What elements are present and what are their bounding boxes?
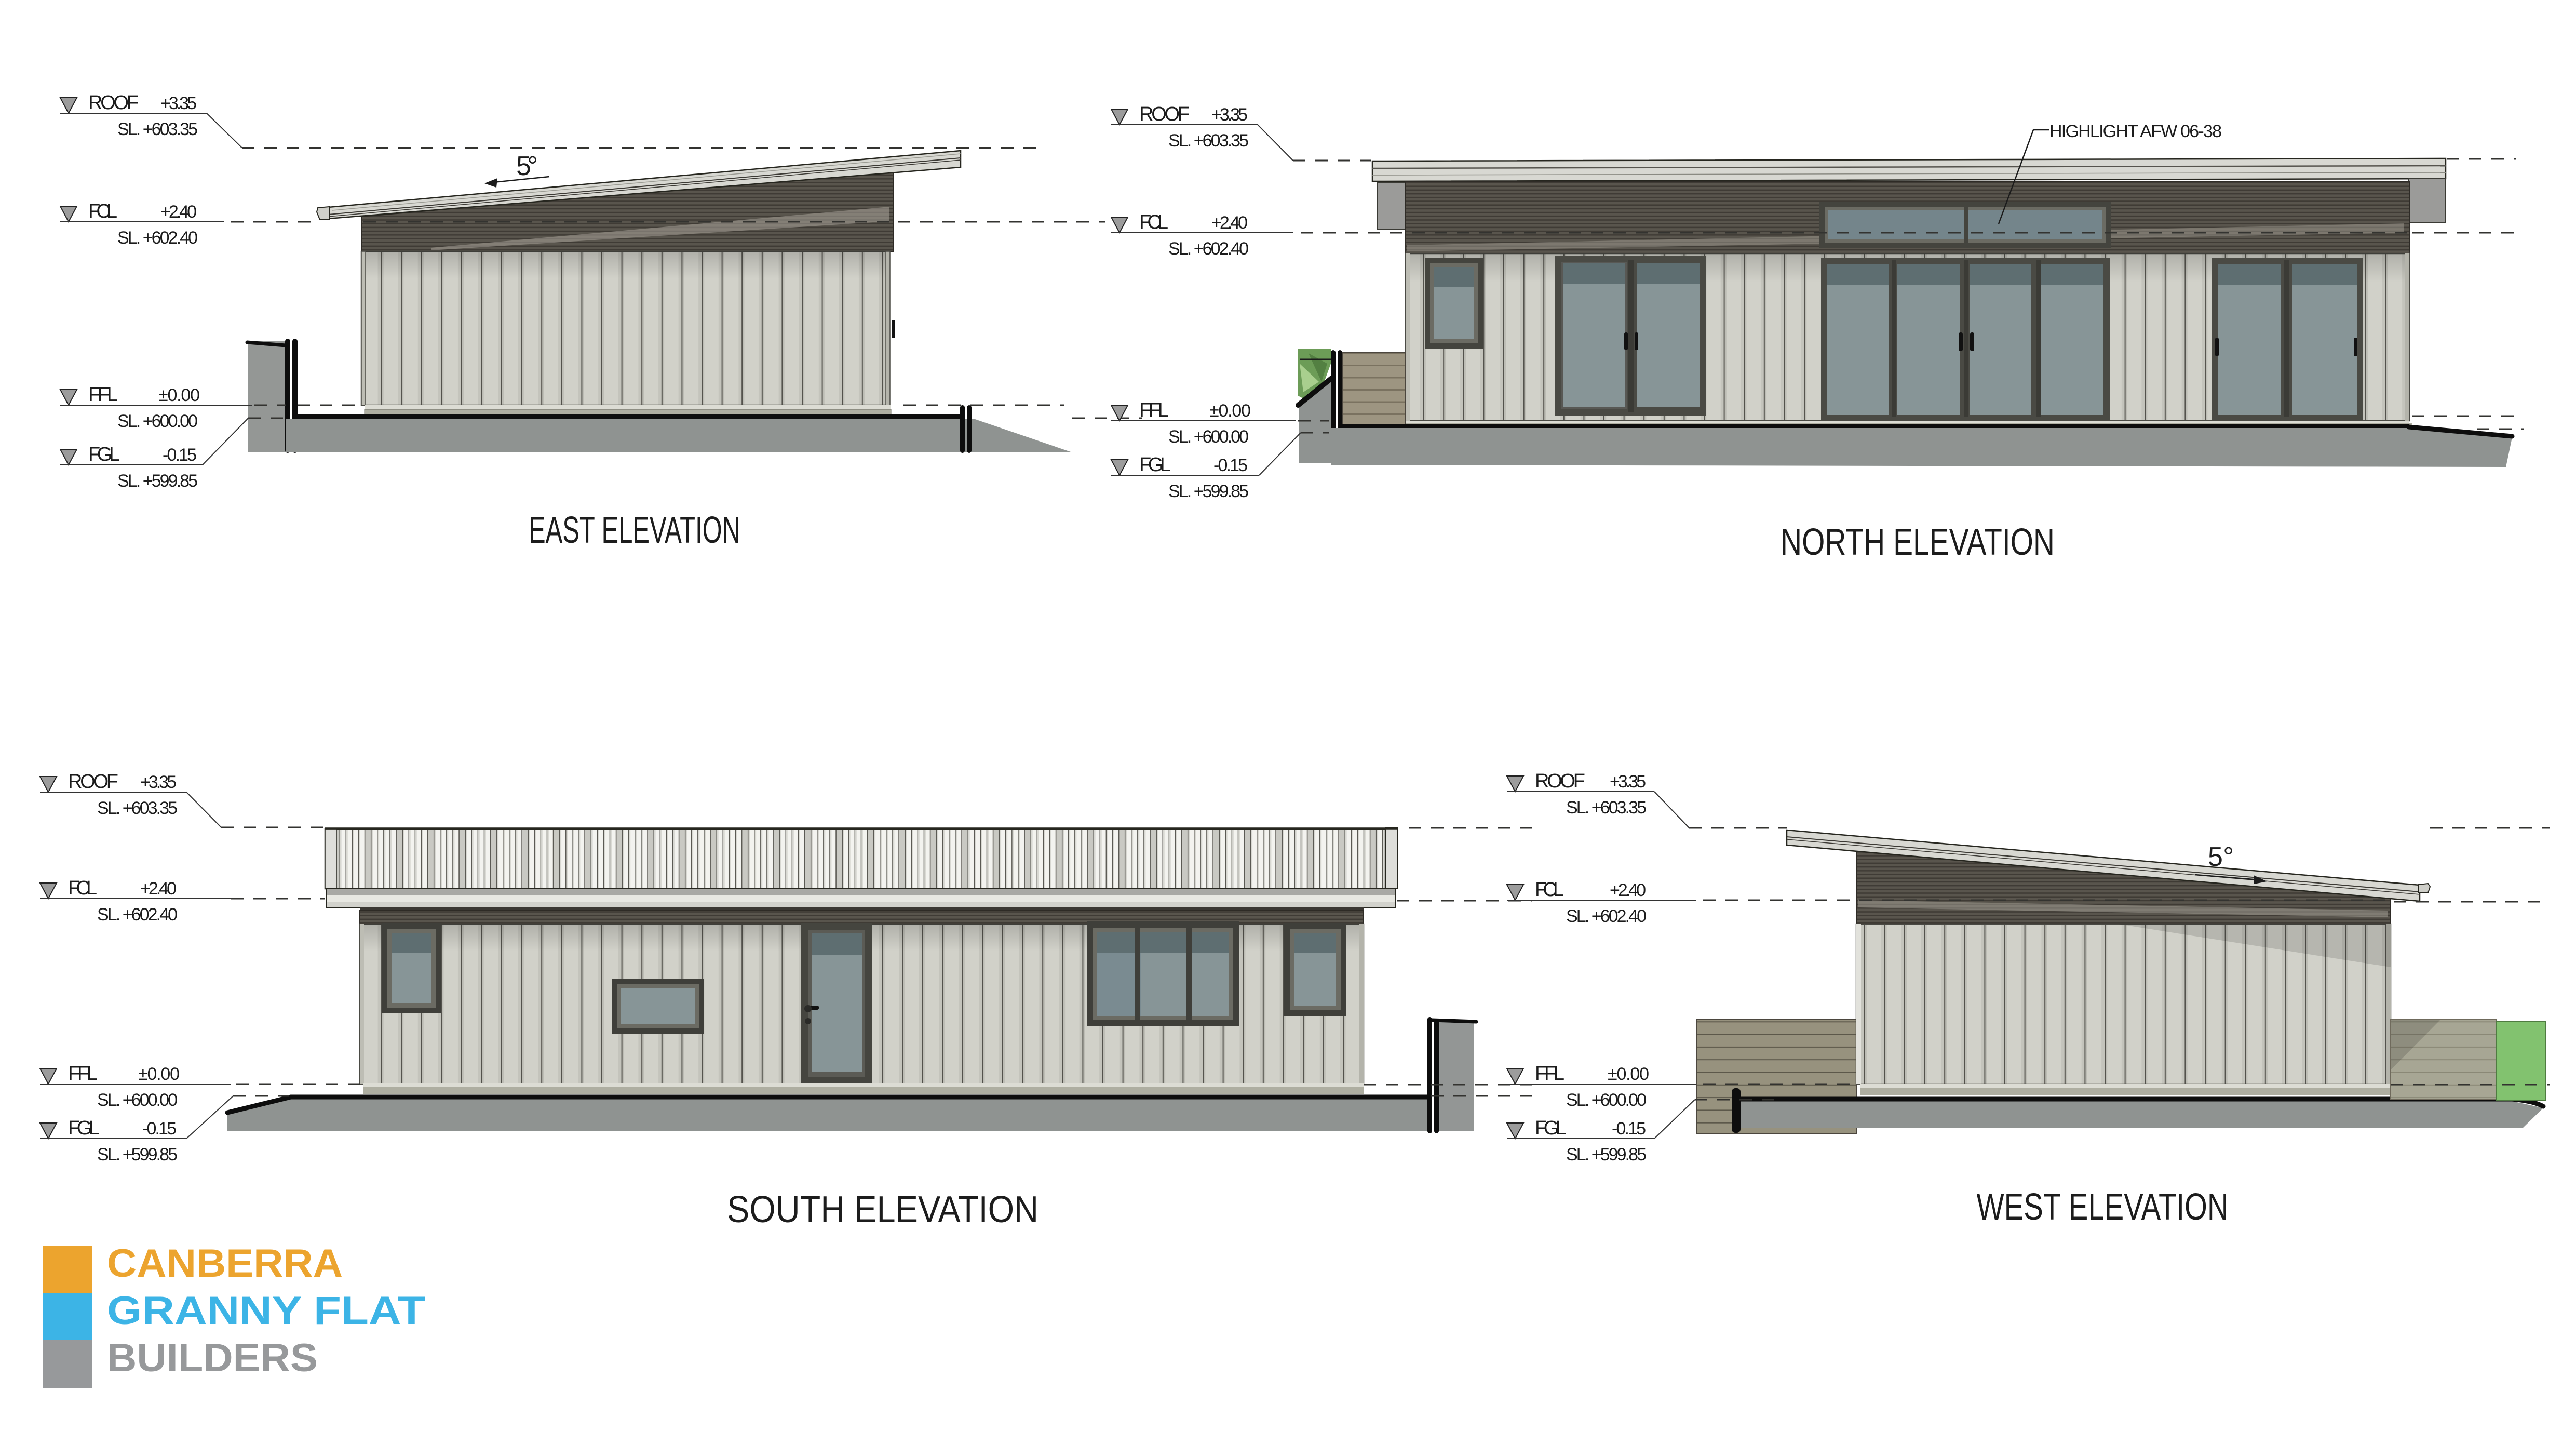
- svg-text:BUILDERS: BUILDERS: [107, 1336, 318, 1380]
- svg-text:FCL: FCL: [68, 877, 97, 899]
- svg-text:+3.35: +3.35: [1211, 105, 1248, 125]
- svg-text:SL. +599.85: SL. +599.85: [1168, 482, 1249, 501]
- svg-text:ROOF: ROOF: [1139, 103, 1190, 125]
- svg-text:WEST ELEVATION: WEST ELEVATION: [1977, 1186, 2229, 1228]
- svg-text:-0.15: -0.15: [142, 1119, 177, 1139]
- svg-text:+2.40: +2.40: [160, 202, 197, 222]
- svg-text:5°: 5°: [2208, 842, 2234, 872]
- svg-text:ROOF: ROOF: [68, 771, 118, 793]
- svg-text:SL. +603.35: SL. +603.35: [1168, 131, 1249, 151]
- svg-text:SL. +603.35: SL. +603.35: [97, 798, 178, 818]
- svg-text:EAST ELEVATION: EAST ELEVATION: [529, 510, 740, 551]
- svg-text:SL. +600.00: SL. +600.00: [1566, 1090, 1647, 1110]
- svg-text:-0.15: -0.15: [163, 445, 197, 465]
- svg-text:SL. +603.35: SL. +603.35: [117, 119, 198, 139]
- svg-text:SL. +602.40: SL. +602.40: [117, 228, 198, 248]
- svg-text:SL. +603.35: SL. +603.35: [1566, 798, 1647, 818]
- svg-text:+3.35: +3.35: [140, 772, 177, 792]
- svg-text:FGL: FGL: [88, 444, 120, 465]
- svg-text:5°: 5°: [516, 151, 538, 181]
- svg-text:SL. +600.00: SL. +600.00: [1168, 427, 1249, 447]
- svg-text:SL. +599.85: SL. +599.85: [1566, 1145, 1647, 1165]
- svg-text:NORTH ELEVATION: NORTH ELEVATION: [1781, 521, 2055, 563]
- svg-text:SOUTH ELEVATION: SOUTH ELEVATION: [727, 1189, 1039, 1231]
- svg-text:+2.40: +2.40: [1211, 213, 1248, 233]
- svg-text:±0.00: ±0.00: [138, 1064, 180, 1084]
- svg-text:FCL: FCL: [88, 200, 117, 222]
- svg-text:FGL: FGL: [1139, 454, 1171, 476]
- svg-text:SL. +602.40: SL. +602.40: [1168, 239, 1249, 259]
- svg-text:FCL: FCL: [1139, 211, 1168, 233]
- svg-text:+3.35: +3.35: [1610, 772, 1646, 792]
- svg-text:SL. +600.00: SL. +600.00: [97, 1090, 178, 1110]
- svg-text:-0.15: -0.15: [1612, 1119, 1646, 1139]
- svg-text:FCL: FCL: [1535, 879, 1564, 901]
- svg-text:FFL: FFL: [88, 384, 118, 406]
- svg-text:SL. +602.40: SL. +602.40: [1566, 906, 1647, 926]
- svg-text:SL. +602.40: SL. +602.40: [97, 905, 178, 925]
- svg-text:FGL: FGL: [1535, 1117, 1567, 1139]
- svg-text:±0.00: ±0.00: [1608, 1064, 1649, 1084]
- svg-text:ROOF: ROOF: [1535, 770, 1585, 792]
- svg-text:SL. +600.00: SL. +600.00: [117, 411, 198, 431]
- svg-text:±0.00: ±0.00: [158, 385, 200, 405]
- svg-text:SL. +599.85: SL. +599.85: [117, 471, 198, 491]
- svg-text:GRANNY FLAT: GRANNY FLAT: [107, 1289, 425, 1333]
- svg-text:CANBERRA: CANBERRA: [107, 1241, 343, 1286]
- svg-text:+2.40: +2.40: [140, 879, 177, 899]
- svg-text:-0.15: -0.15: [1213, 456, 1248, 475]
- svg-text:+2.40: +2.40: [1610, 880, 1646, 900]
- svg-text:FFL: FFL: [68, 1063, 98, 1085]
- svg-text:ROOF: ROOF: [88, 92, 139, 114]
- svg-text:FGL: FGL: [68, 1117, 100, 1139]
- svg-text:±0.00: ±0.00: [1209, 401, 1251, 421]
- svg-text:+3.35: +3.35: [160, 93, 197, 113]
- svg-text:FFL: FFL: [1535, 1063, 1565, 1085]
- svg-text:FFL: FFL: [1139, 399, 1169, 421]
- svg-text:SL. +599.85: SL. +599.85: [97, 1145, 178, 1165]
- svg-text:HIGHLIGHT AFW 06-38: HIGHLIGHT AFW 06-38: [2049, 122, 2222, 141]
